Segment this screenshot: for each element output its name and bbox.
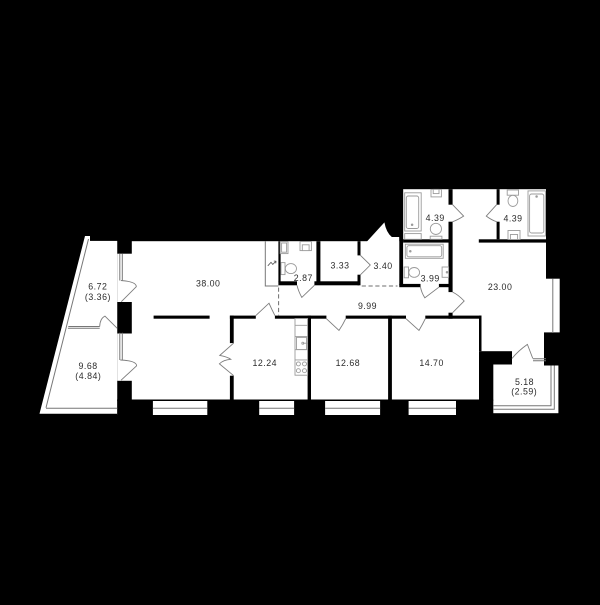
svg-text:4.39: 4.39	[503, 214, 522, 224]
svg-text:9.68: 9.68	[79, 361, 98, 371]
svg-text:(3.36): (3.36)	[85, 292, 111, 302]
svg-text:3.99: 3.99	[421, 274, 440, 284]
svg-text:3.40: 3.40	[374, 261, 393, 271]
svg-text:(4.84): (4.84)	[75, 371, 101, 381]
svg-text:9.99: 9.99	[358, 301, 377, 311]
svg-text:12.24: 12.24	[253, 358, 278, 368]
svg-text:2.87: 2.87	[294, 273, 313, 283]
svg-text:(2.59): (2.59)	[511, 387, 537, 397]
svg-text:14.70: 14.70	[419, 358, 444, 368]
svg-text:6.72: 6.72	[88, 282, 107, 292]
svg-text:4.39: 4.39	[426, 213, 445, 223]
svg-text:3.33: 3.33	[330, 260, 349, 270]
svg-text:23.00: 23.00	[488, 282, 513, 292]
svg-text:38.00: 38.00	[196, 278, 221, 288]
svg-text:5.18: 5.18	[515, 377, 534, 387]
svg-text:12.68: 12.68	[336, 358, 361, 368]
